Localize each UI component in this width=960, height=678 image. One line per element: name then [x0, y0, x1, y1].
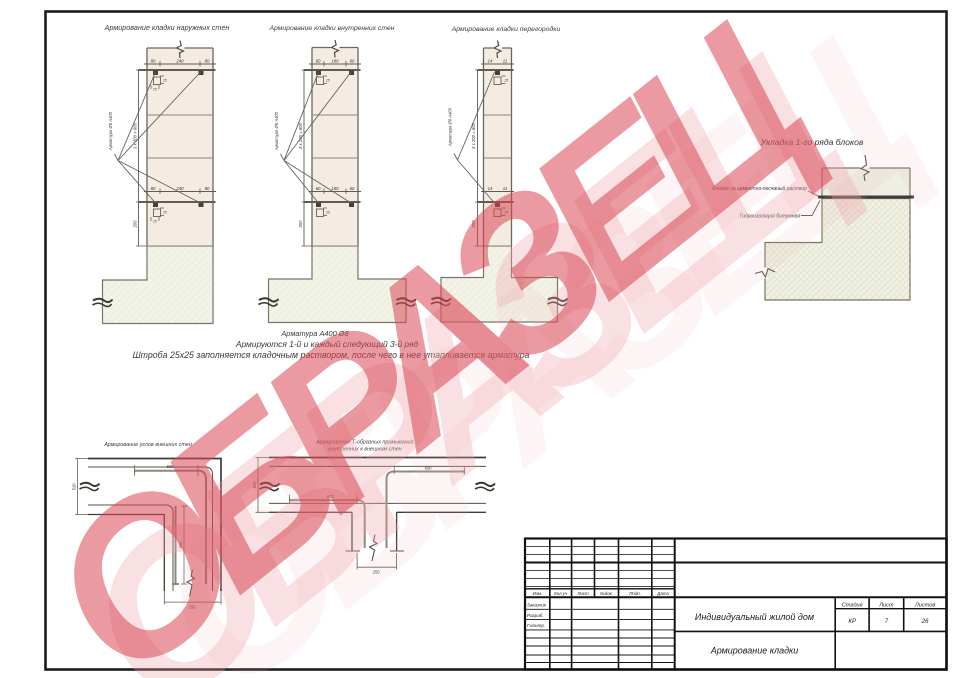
svg-text:60: 60 [316, 186, 321, 191]
svg-text:80: 80 [205, 186, 210, 191]
svg-text:Разраб.: Разраб. [527, 613, 544, 618]
svg-text:180: 180 [331, 186, 339, 191]
svg-text:11: 11 [503, 59, 508, 64]
svg-text:Армирование кладки внутренних: Армирование кладки внутренних стен [268, 24, 394, 32]
svg-text:14: 14 [488, 59, 493, 64]
svg-text:25: 25 [325, 211, 330, 215]
svg-text:200: 200 [298, 220, 303, 229]
svg-text:Армирование кладки наружных ст: Армирование кладки наружных стен [104, 23, 230, 32]
svg-text:26: 26 [921, 619, 929, 625]
svg-text:25: 25 [325, 79, 330, 83]
svg-text:№док.: №док. [600, 591, 613, 596]
svg-text:60: 60 [316, 59, 321, 64]
svg-text:Арматура Ø8 А400: Арматура Ø8 А400 [274, 111, 279, 151]
svg-text:200: 200 [133, 220, 138, 229]
svg-text:80: 80 [205, 59, 210, 64]
svg-text:25: 25 [152, 88, 157, 92]
svg-text:Стадия: Стадия [842, 602, 863, 608]
svg-text:Заказчик: Заказчик [527, 603, 547, 608]
svg-text:Армирование кладки: Армирование кладки [710, 646, 799, 656]
svg-text:25: 25 [504, 79, 509, 83]
svg-text:Листов: Листов [914, 602, 935, 608]
svg-text:Арматура Ø8 А400: Арматура Ø8 А400 [448, 107, 453, 147]
svg-text:80: 80 [151, 186, 156, 191]
svg-text:Лист: Лист [576, 591, 589, 596]
svg-text:25: 25 [162, 79, 167, 83]
svg-text:240: 240 [175, 59, 184, 64]
svg-text:Лист: Лист [878, 602, 894, 608]
svg-text:Изм.: Изм. [533, 591, 542, 596]
svg-text:Дата: Дата [656, 591, 669, 596]
svg-text:80: 80 [151, 59, 156, 64]
svg-text:3 х 200 = 600: 3 х 200 = 600 [133, 122, 138, 149]
svg-text:60: 60 [350, 59, 355, 64]
svg-text:Подп.: Подп. [629, 591, 641, 596]
svg-text:Индивидуальный жилой дом: Индивидуальный жилой дом [695, 612, 814, 622]
svg-text:КР: КР [848, 619, 856, 625]
svg-text:Г.контр.: Г.контр. [527, 623, 545, 628]
svg-text:Кол.уч: Кол.уч [554, 591, 568, 596]
svg-text:Армирование кладки перегородки: Армирование кладки перегородки [451, 25, 561, 33]
svg-text:60: 60 [350, 186, 355, 191]
svg-text:Арматура Ø8 А400: Арматура Ø8 А400 [108, 111, 113, 151]
svg-text:25: 25 [162, 211, 167, 215]
svg-text:180: 180 [331, 59, 339, 64]
svg-text:25: 25 [152, 220, 157, 224]
